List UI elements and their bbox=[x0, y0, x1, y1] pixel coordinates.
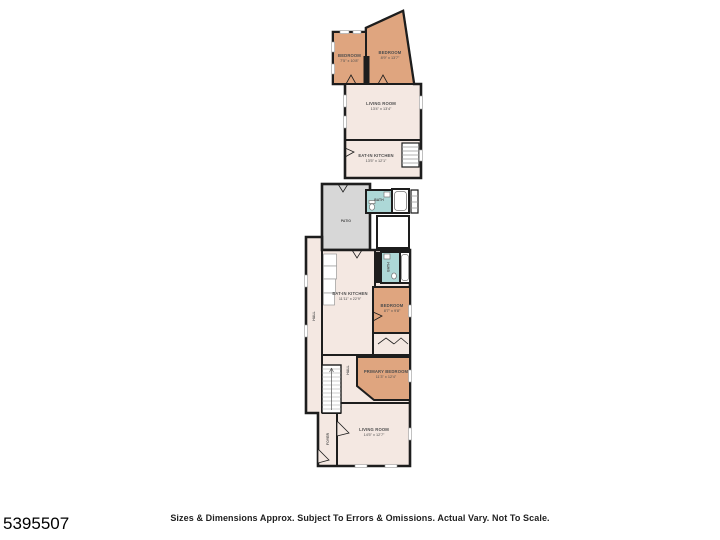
room-label: EAT-IN KITCHEN bbox=[358, 153, 393, 158]
room-dims: 11'3" x 12'4" bbox=[376, 375, 397, 379]
room-label: PRIMARY BEDROOM bbox=[364, 369, 409, 374]
floorplan-image: BEDROOM 7'5" x 10'8" BEDROOM 8'9" x 13'7… bbox=[0, 0, 720, 540]
room-dims: 11'11" x 22'9" bbox=[339, 297, 362, 301]
closet bbox=[373, 333, 410, 355]
stairs-top-unit bbox=[402, 143, 419, 167]
room-label: FOYER bbox=[326, 432, 330, 445]
room-label: LIVING ROOM bbox=[366, 101, 396, 106]
room-dims: 8'9" x 13'7" bbox=[381, 56, 400, 60]
room-dims: 13'4" x 13'4" bbox=[371, 107, 392, 111]
room-bedroom-2 bbox=[366, 11, 414, 84]
floorplan-page: BEDROOM 7'5" x 10'8" BEDROOM 8'9" x 13'7… bbox=[0, 0, 720, 540]
toilet-icon bbox=[392, 273, 397, 279]
room-label: LIVING ROOM bbox=[359, 427, 389, 432]
room-label: HALL bbox=[346, 365, 350, 374]
room-patio bbox=[322, 184, 370, 250]
kitchen-appliances bbox=[324, 254, 337, 305]
listing-id: 5395507 bbox=[3, 514, 69, 534]
wall-segment bbox=[364, 56, 370, 84]
room-bedroom-1 bbox=[333, 32, 366, 84]
sink-icon bbox=[384, 192, 390, 197]
room-label: BATH bbox=[374, 198, 384, 202]
room-dims: 13'5" x 12'1" bbox=[366, 159, 387, 163]
middle-section bbox=[322, 184, 418, 250]
room-dims: 14'5" x 12'7" bbox=[364, 433, 385, 437]
room-label: BATH bbox=[387, 262, 391, 272]
room-dims: 8'7" x 9'8" bbox=[384, 309, 401, 313]
room-label: EAT-IN KITCHEN bbox=[332, 291, 367, 296]
room-label: BEDROOM bbox=[338, 53, 361, 58]
disclaimer-text: Sizes & Dimensions Approx. Subject To Er… bbox=[0, 513, 720, 523]
toilet-icon bbox=[369, 204, 374, 210]
lower-unit bbox=[305, 237, 412, 468]
stairs-lower-unit bbox=[322, 365, 341, 413]
room-label: BEDROOM bbox=[379, 50, 402, 55]
room-dims: 7'5" x 10'8" bbox=[340, 59, 359, 63]
room-label: PATIO bbox=[341, 219, 352, 223]
room-label: BEDROOM bbox=[381, 303, 404, 308]
sink-icon bbox=[384, 254, 390, 259]
room-label: HALL bbox=[312, 311, 316, 320]
